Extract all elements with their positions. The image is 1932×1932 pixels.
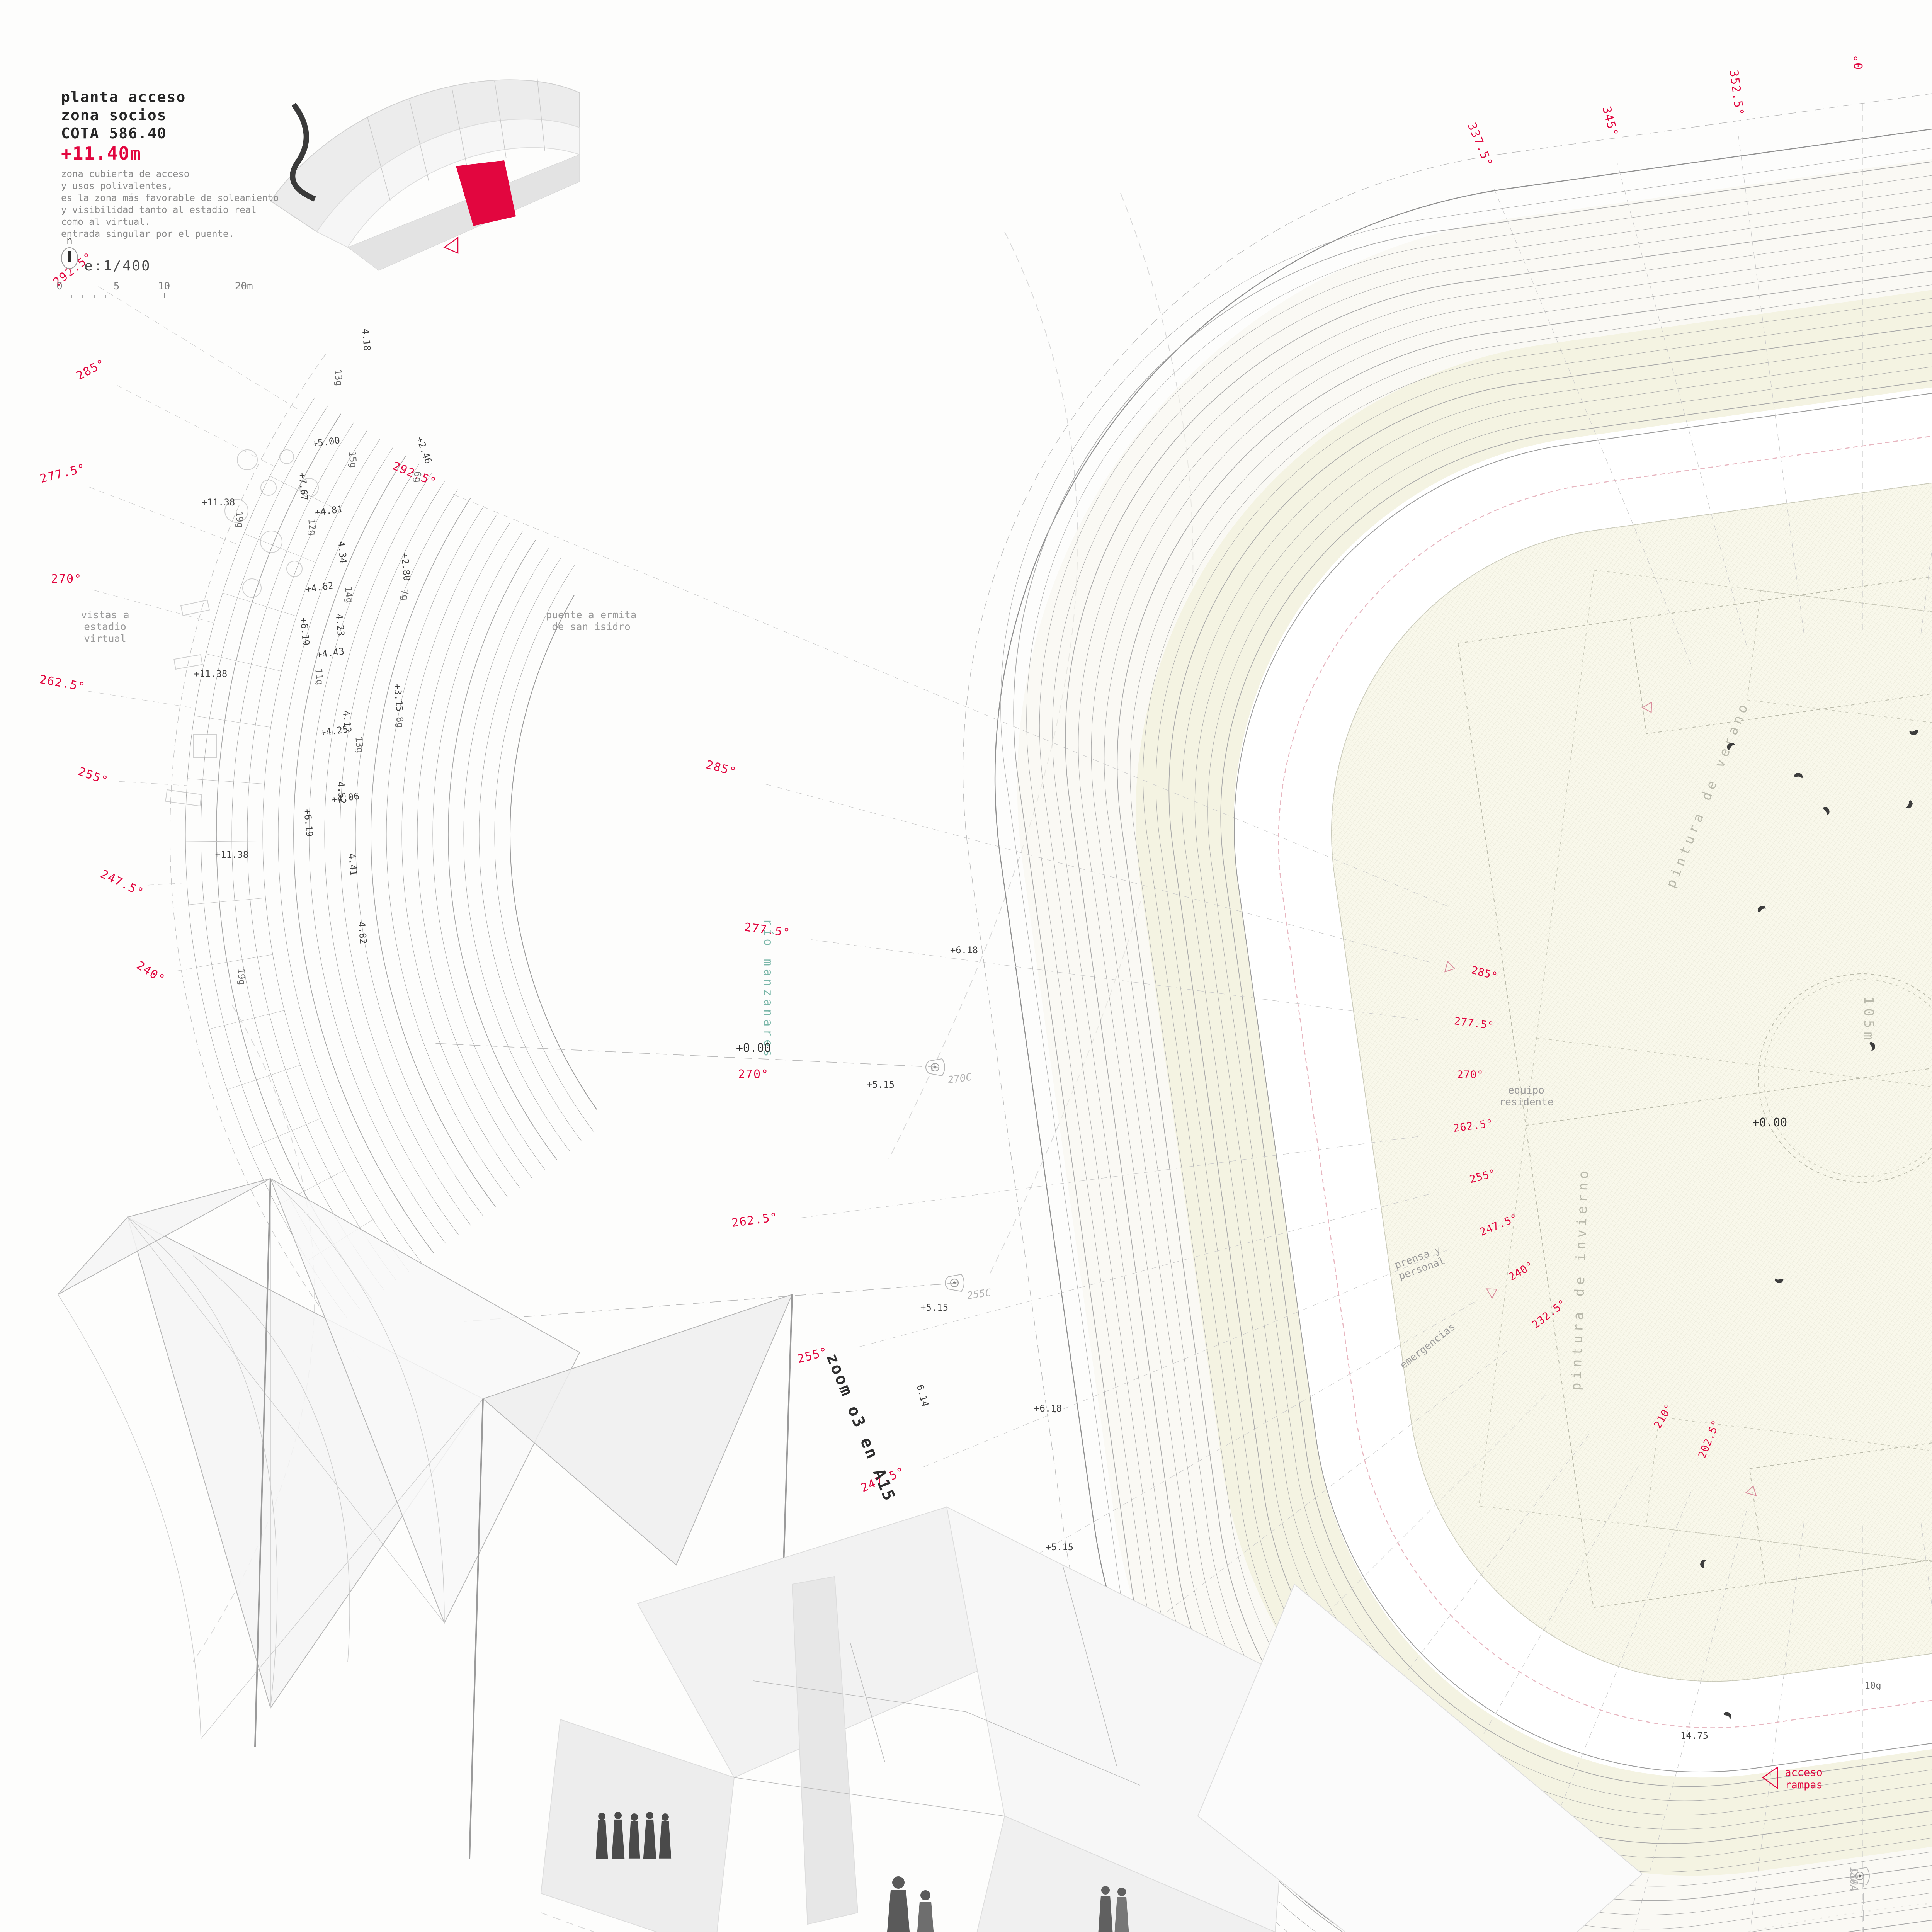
elevation-label: 6.14 [915,1383,931,1408]
angle-label-stand: 262.5° [38,673,87,694]
elevation-label: +11.38 [215,849,249,860]
elevation-label: +5.15 [920,1302,948,1313]
elevation-label: +6.18 [950,945,978,956]
elevation-label: 4.82 [356,921,369,944]
anchor-label: 180A [1848,1867,1859,1891]
elevation-label: +6.19 [302,808,315,837]
scale-ratio: e:1/400 [84,258,151,274]
grada-label: 6g [412,471,423,483]
angle-label-stand: 255° [77,765,110,788]
elevation-label: +5.15 [1046,1542,1073,1553]
grada-label: 13g [332,369,345,386]
drawing-sheet: 0°7.5°15°22.5°30°37.5°45°52.5°60°67.5°75… [0,0,1932,1932]
plan-drawing: 0°7.5°15°22.5°30°37.5°45°52.5°60°67.5°75… [0,0,1932,1932]
angle-label-outer: 345° [1599,105,1621,138]
map-label: 14.75 [1680,1730,1708,1741]
angle-label-outer: 262.5° [731,1211,779,1230]
elevation-label: 4.18 [360,328,373,351]
grada-label: 11g [313,668,325,685]
note-planta-socios: planta acceso zona socios COTA 586.40 +1… [61,88,602,240]
elevation-label: +4.43 [316,646,345,660]
grada-label: 19g [233,510,246,528]
angle-label-stand: 270° [51,572,82,586]
elevation-label: +2.80 [399,553,412,581]
angle-label-stand: 277.5° [39,461,87,486]
angle-label-outer: 352.5° [1727,69,1746,117]
anchor-label: 255C [966,1287,992,1301]
elevation-label: +2.46 [414,435,434,465]
grada-label: 19g [235,968,248,985]
angle-label-outer: 337.5° [1465,121,1495,169]
note-level: +11.40m [61,143,602,164]
planting [165,450,318,806]
scale-bar: 0 5 10 20m [60,281,250,298]
grada-label: 10g [1864,1680,1881,1691]
elevation-label: +11.38 [194,668,228,679]
map-label: +0.00 [736,1041,771,1055]
grada-label: 13g [353,736,366,753]
elevation-label: +4.81 [314,503,343,518]
north-circle [61,247,78,269]
elevation-label: +6.19 [298,617,311,646]
elevation-label: +5.00 [311,435,340,449]
angle-label-outer: 255° [796,1345,830,1366]
angle-label-stand: 285° [74,356,108,383]
angle-label-inner: 270° [1457,1069,1483,1081]
grada-label: 8g [394,716,406,728]
grada-label: 14g [343,586,355,604]
elevation-label: 4.34 [336,541,349,564]
note-cota: COTA 586.40 [61,124,602,143]
map-label: río manzanares [761,919,775,1060]
elevation-label: +11.38 [202,497,235,508]
angle-label-outer: 0° [1852,54,1866,70]
anchor-label: 270C [947,1071,973,1086]
elevation-label: 4.52 [335,781,348,804]
grada-label: 12g [306,518,318,536]
elevation-label: +3.15 [392,683,405,712]
map-label: +0.00 [1752,1116,1787,1129]
grada-label: 15g [347,451,359,468]
map-label: puente a ermitade san isidro [546,609,637,633]
angle-label-stand: 247.5° [98,867,146,900]
map-label: vistas aestadiovirtual [81,609,129,645]
angle-label-outer: 270° [738,1068,769,1081]
elevation-label: +6.18 [1034,1403,1062,1414]
elevation-label: +4.62 [305,580,334,595]
map-label: accesorampas [1785,1767,1823,1791]
angle-label-stand: 240° [134,959,168,986]
elevation-label: +5.15 [867,1079,895,1090]
grada-label: 7g [399,589,411,601]
elevation-label: 4.12 [341,710,354,733]
elevation-label: +7.67 [297,472,310,501]
elevation-label: 4.41 [347,853,359,876]
map-label: 105m [1861,997,1876,1044]
elevation-label: 4.23 [334,613,347,636]
angle-label-outer: 285° [704,758,738,779]
note-title: planta acceso [61,88,602,106]
